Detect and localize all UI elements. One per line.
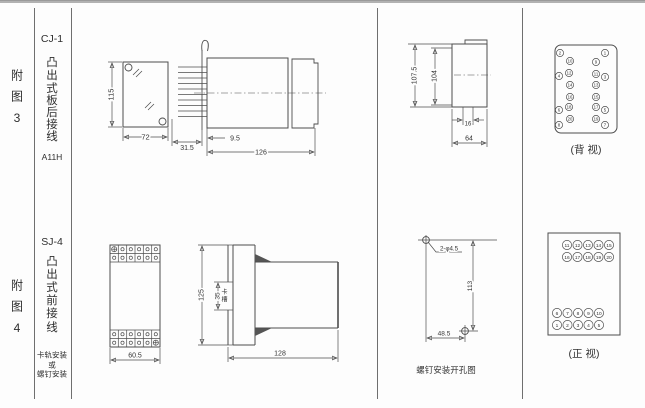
terminal-14: 14 — [568, 83, 573, 88]
terminal-3: 3 — [604, 75, 607, 80]
terminal-19: 19 — [594, 117, 599, 122]
terminal-1: 1 — [556, 323, 559, 329]
fig4-char: 4 — [14, 321, 21, 335]
table-border-bottom — [0, 0, 645, 3]
dim-107-5: 107.5 — [412, 67, 419, 85]
terminal-17: 17 — [575, 255, 581, 261]
fig4-char: 附 — [11, 277, 23, 294]
back-view-caption: (背 视) — [571, 143, 602, 156]
rear-plug-block — [292, 59, 318, 128]
terminal-13: 13 — [585, 243, 591, 249]
terminal-16: 16 — [568, 95, 573, 100]
terminal-3: 3 — [577, 323, 580, 329]
terminal-14: 14 — [596, 243, 602, 249]
bottom-gusset — [255, 328, 272, 336]
dim-31-5: 31.5 — [180, 145, 194, 152]
sj4-front-view-drawing: 60.5 — [95, 230, 205, 370]
terminal-18: 18 — [585, 255, 591, 261]
bottom-terminal-strip — [110, 330, 160, 347]
terminal-11: 11 — [565, 243, 570, 249]
relay-code-a11h: A11H — [42, 152, 63, 162]
terminal-15: 15 — [606, 243, 612, 249]
dim-125: 125 — [199, 289, 206, 301]
terminal-5: 5 — [598, 323, 601, 329]
sj4-drill-diagram: 2-φ4.5 113 48.5 螺钉安装开孔图 — [400, 230, 525, 380]
front-view-caption: (正 视) — [569, 347, 600, 360]
terminal-18: 18 — [567, 105, 572, 110]
dim-60-5: 60.5 — [128, 353, 142, 360]
cj1-side-view-drawing: 9.5 31.5 126 — [168, 20, 333, 160]
dim-48-5: 48.5 — [438, 331, 451, 338]
corner-screw-hole — [125, 64, 132, 71]
terminal-19: 19 — [596, 255, 602, 261]
terminal-12: 12 — [575, 243, 581, 249]
terminal-17: 17 — [594, 105, 599, 110]
sj4-terminal-front-view: 11 12 13 14 15 16 17 18 19 20 6 7 8 9 10… — [545, 228, 645, 365]
terminal-circles-back: 2 4 6 8 10 12 14 16 18 20 9 11 13 15 17 … — [555, 49, 608, 128]
dim-64: 64 — [465, 136, 473, 143]
terminal-2: 2 — [566, 323, 569, 329]
terminal-pins — [178, 67, 207, 117]
fig3-char: 附 — [11, 67, 23, 84]
fig3-char: 图 — [11, 88, 23, 105]
terminal-20: 20 — [606, 255, 612, 261]
drill-diagram-caption: 螺钉安装开孔图 — [416, 365, 476, 375]
terminal-7: 7 — [604, 123, 607, 128]
terminal-7: 7 — [566, 311, 569, 317]
slot-label-char: 卡 — [221, 288, 227, 296]
dim-128: 128 — [274, 351, 286, 358]
top-terminal-strip — [110, 245, 160, 262]
mount-line: 螺钉安装 — [37, 369, 67, 380]
terminal-6: 6 — [558, 108, 561, 113]
type-char: 线 — [46, 319, 58, 335]
dim-126: 126 — [255, 150, 267, 157]
fig4-char: 图 — [11, 298, 23, 315]
dim-72: 72 — [141, 133, 149, 142]
corner-screw-hole — [159, 118, 166, 125]
manual-page: 附 图 3 CJ-1 凸 出 式 板 后 接 线 A11H 115 72 — [0, 0, 645, 408]
relay-model-sj4: SJ-4 — [41, 236, 63, 248]
top-gusset — [255, 254, 272, 262]
terminal-4: 4 — [587, 323, 590, 329]
terminal-8: 8 — [558, 123, 561, 128]
slot-label-char: 槽 — [221, 296, 227, 304]
terminal-6: 6 — [556, 311, 559, 317]
table-col-line-3 — [377, 8, 378, 399]
terminal-12: 12 — [567, 71, 572, 76]
terminal-16: 16 — [564, 255, 570, 261]
dim-115: 115 — [107, 89, 116, 101]
dim-104: 104 — [432, 70, 439, 82]
cj1-panel-profile-drawing: 107.5 104 16 64 — [390, 25, 522, 155]
type-char: 线 — [46, 128, 58, 144]
terminal-9: 9 — [587, 311, 590, 317]
table-col-line-1 — [34, 8, 35, 399]
terminal-13: 13 — [594, 83, 599, 88]
terminal-8: 8 — [577, 311, 580, 317]
dim-35: 35 — [215, 292, 222, 300]
terminal-2: 2 — [559, 51, 562, 56]
terminal-circles-front: 11 12 13 14 15 16 17 18 19 20 6 7 8 9 10… — [552, 240, 613, 329]
terminal-20: 20 — [568, 117, 573, 122]
dim-113: 113 — [467, 280, 474, 291]
terminal-1: 1 — [604, 51, 607, 56]
terminal-4: 4 — [558, 74, 561, 79]
table-col-line-2 — [71, 8, 72, 399]
terminal-9: 9 — [595, 60, 598, 65]
terminal-5: 5 — [604, 108, 607, 113]
dim-16: 16 — [465, 122, 472, 128]
terminal-11: 11 — [594, 72, 599, 77]
fig3-char: 3 — [14, 111, 21, 125]
terminal-10: 10 — [596, 311, 602, 317]
relay-model-cj1: CJ-1 — [41, 33, 63, 45]
terminal-10: 10 — [568, 59, 573, 64]
cj1-terminal-back-view: 2 4 6 8 10 12 14 16 18 20 9 11 13 15 17 … — [545, 38, 645, 160]
dim-9-5: 9.5 — [230, 136, 240, 143]
mounting-hook — [202, 40, 209, 51]
terminal-15: 15 — [594, 95, 599, 100]
sj4-side-view-drawing: 125 35 卡 槽 128 — [195, 230, 345, 368]
hole-spec-label: 2-φ4.5 — [440, 246, 459, 253]
